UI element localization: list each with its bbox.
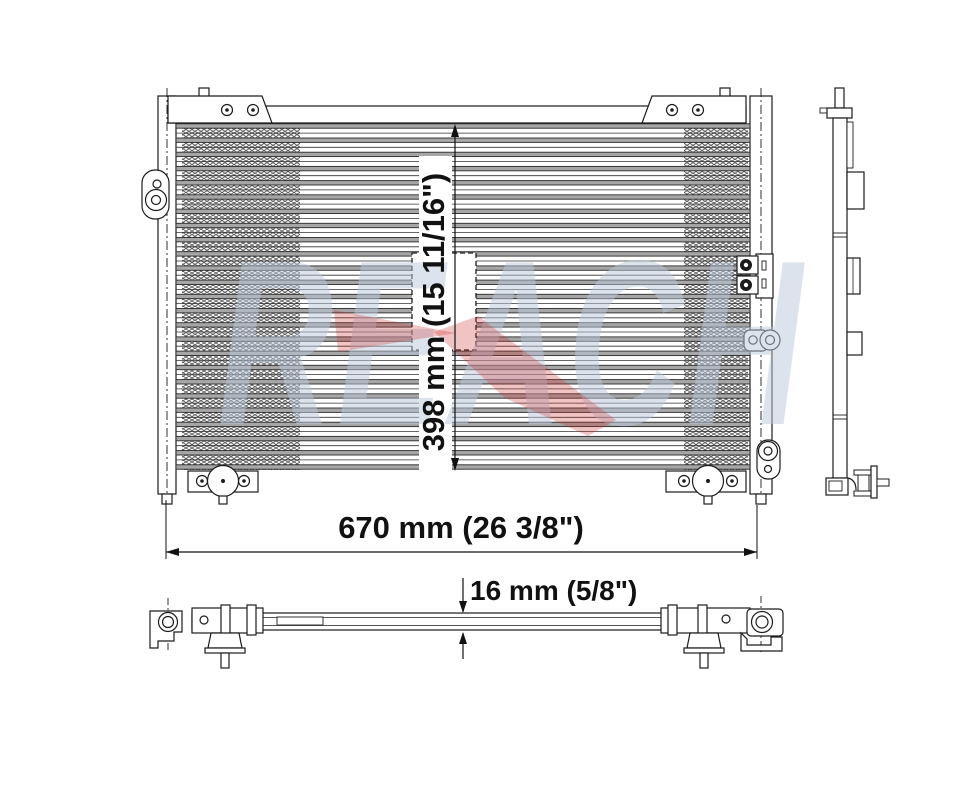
depth-dim-label: 16 mm (5/8") [470, 575, 637, 606]
side-view [820, 88, 889, 498]
mount-pin [221, 653, 229, 668]
arrow-right-icon [744, 548, 757, 556]
right-tank-stub [756, 494, 766, 504]
left-tank-stub [162, 494, 172, 504]
side-bracket-upper [847, 172, 864, 209]
side-bracket-lower [847, 332, 862, 355]
bottom-view [150, 596, 783, 668]
dim-width: 670 mm (26 3/8") [166, 500, 757, 559]
right-clamp [661, 605, 750, 668]
watermark: REACH [218, 211, 807, 474]
left-clamp [192, 605, 263, 668]
arrow-up-icon [459, 632, 467, 644]
top-mount-bracket [168, 88, 746, 123]
arrow-left-icon [166, 548, 179, 556]
side-top-tab [835, 88, 844, 108]
arrow-down-icon [459, 601, 467, 613]
side-bracket-middle [847, 258, 860, 294]
left-inlet-fitting [142, 170, 169, 219]
condenser-drawing: REACH 398 mm (15 11/16") 670 mm (26 3/8"… [0, 0, 960, 796]
width-dim-label: 670 mm (26 3/8") [338, 510, 584, 545]
technical-drawing-page: REACH 398 mm (15 11/16") 670 mm (26 3/8"… [0, 0, 960, 796]
mount-pin [700, 653, 708, 668]
side-body [833, 118, 847, 478]
height-dim-label: 398 mm (15 11/16") [416, 173, 451, 451]
right-end-bracket [741, 609, 783, 651]
